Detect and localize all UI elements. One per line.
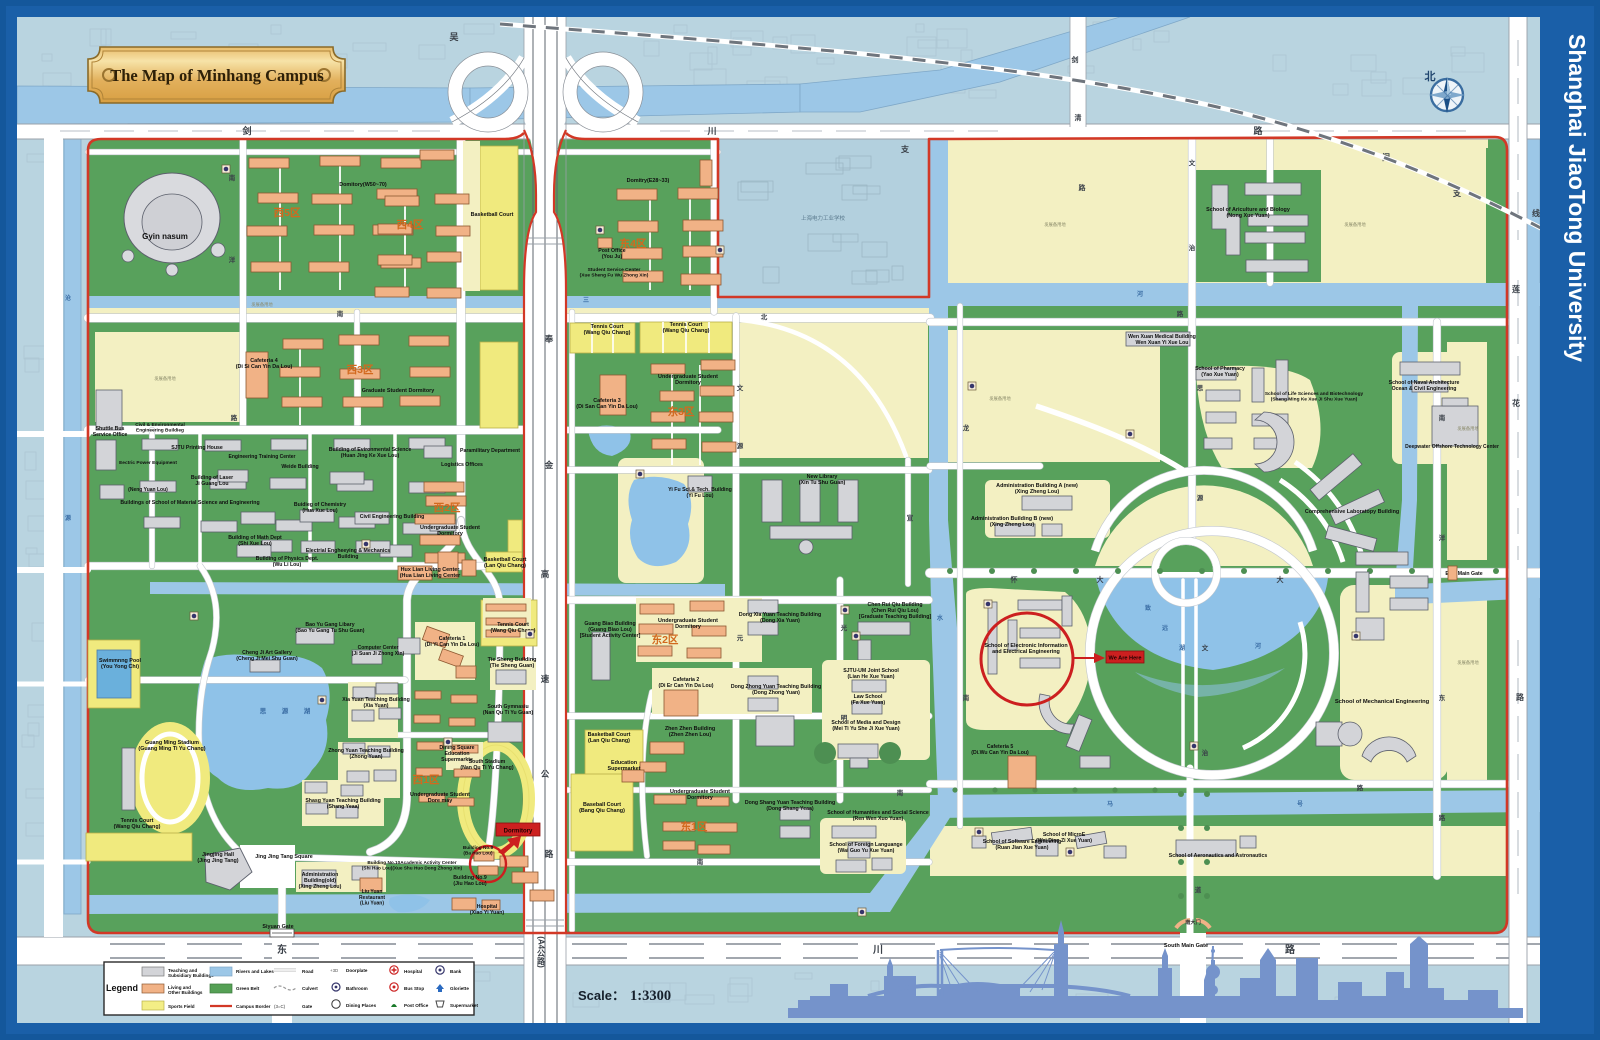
svg-text:路: 路 bbox=[1253, 125, 1263, 136]
svg-text:South Main Gate: South Main Gate bbox=[1164, 943, 1208, 949]
svg-text:Building No.9(Jiu Hao Lou): Building No.9(Jiu Hao Lou) bbox=[453, 875, 487, 887]
svg-text:公: 公 bbox=[541, 769, 550, 779]
svg-text:Guang Ming Stadium(Guang Ming: Guang Ming Stadium(Guang Ming Ti Yu Chan… bbox=[138, 740, 205, 752]
svg-text:吴: 吴 bbox=[449, 32, 459, 42]
svg-text:School of Naval ArchitectureOc: School of Naval ArchitectureOcean & Civi… bbox=[1389, 380, 1460, 392]
svg-text:西2区: 西2区 bbox=[434, 502, 461, 514]
svg-text:奉: 奉 bbox=[544, 334, 554, 344]
svg-text:Tie Sheng Building(Tie Sheng G: Tie Sheng Building(Tie Sheng Guan) bbox=[488, 657, 537, 669]
svg-text:水: 水 bbox=[937, 614, 944, 622]
svg-text:大: 大 bbox=[1277, 575, 1284, 584]
svg-text:金: 金 bbox=[544, 460, 554, 470]
svg-text:Civil & EnvironmentalEngineeri: Civil & EnvironmentalEngineering Buildie… bbox=[135, 422, 185, 434]
svg-text:Deepwater Offshore Technology: Deepwater Offshore Technology Center bbox=[1405, 444, 1499, 450]
svg-text:文: 文 bbox=[736, 383, 744, 392]
svg-text:Paramilitary Department: Paramilitary Department bbox=[460, 448, 520, 454]
svg-text:源: 源 bbox=[65, 514, 71, 522]
svg-text:Rivers and Lakes: Rivers and Lakes bbox=[236, 969, 274, 974]
svg-text:Baseball Court(Bang Qiu Chang): Baseball Court(Bang Qiu Chang) bbox=[579, 802, 625, 814]
svg-text:治: 治 bbox=[1202, 748, 1209, 757]
svg-text:Dining Places: Dining Places bbox=[346, 1003, 377, 1008]
svg-text:Zhen Zhen Building(Zhen Zhen L: Zhen Zhen Building(Zhen Zhen Lou) bbox=[665, 726, 715, 738]
svg-text:治: 治 bbox=[1189, 243, 1196, 252]
svg-text:Domitory(W50~70): Domitory(W50~70) bbox=[339, 182, 387, 188]
svg-text:School of Electronic Informati: School of Electronic Informationand Elec… bbox=[984, 643, 1067, 655]
svg-text:Bathroom: Bathroom bbox=[346, 986, 368, 991]
svg-text:Basketball Court(Lan Qiu Chang: Basketball Court(Lan Qiu Chang) bbox=[484, 557, 527, 569]
svg-text:Engineering Training Center: Engineering Training Center bbox=[229, 454, 296, 460]
svg-text:源: 源 bbox=[282, 706, 289, 715]
svg-text:河: 河 bbox=[1137, 290, 1143, 298]
svg-text:南: 南 bbox=[897, 788, 904, 797]
svg-text:洋: 洋 bbox=[229, 255, 236, 264]
svg-text:号: 号 bbox=[1297, 800, 1303, 808]
svg-text:剑: 剑 bbox=[241, 125, 251, 136]
svg-text:Buildings of School of Materia: Buildings of School of Material Science … bbox=[120, 500, 259, 506]
svg-text:Post Office(You Ju): Post Office(You Ju) bbox=[598, 248, 625, 260]
svg-text:Legend: Legend bbox=[106, 983, 138, 993]
svg-text:发展备用地: 发展备用地 bbox=[251, 301, 273, 308]
svg-text:SJTU-UM Joint School(Lian He X: SJTU-UM Joint School(Lian He Xue Yuan) bbox=[843, 668, 899, 680]
svg-text:Gloriette: Gloriette bbox=[450, 986, 469, 991]
svg-text:发展备用地: 发展备用地 bbox=[1457, 425, 1479, 432]
svg-text:思: 思 bbox=[1197, 383, 1204, 392]
svg-text:三: 三 bbox=[583, 297, 589, 304]
svg-text:(3=C): (3=C) bbox=[274, 1004, 286, 1009]
svg-text:Building of LaserJi Guang Lou: Building of LaserJi Guang Lou bbox=[191, 475, 233, 487]
svg-text:洋: 洋 bbox=[1439, 533, 1446, 542]
svg-text:南: 南 bbox=[697, 857, 704, 866]
svg-text:西4区: 西4区 bbox=[397, 219, 424, 231]
svg-text:Green Belt: Green Belt bbox=[236, 986, 260, 991]
svg-text:元: 元 bbox=[737, 634, 744, 642]
svg-text:东2区: 东2区 bbox=[652, 633, 679, 646]
svg-text:宣: 宣 bbox=[907, 513, 914, 522]
svg-text:南大门: 南大门 bbox=[1185, 918, 1201, 926]
svg-text:1:3300: 1:3300 bbox=[630, 988, 671, 1004]
svg-text:发展备用地: 发展备用地 bbox=[154, 375, 176, 382]
svg-text:South Gymnasiu(Nan Qu Ti Yu Gu: South Gymnasiu(Nan Qu Ti Yu Guan) bbox=[483, 704, 534, 716]
svg-text:We Are Here: We Are Here bbox=[1109, 656, 1142, 662]
svg-text:(Neng Yuan Lou): (Neng Yuan Lou) bbox=[128, 487, 168, 493]
svg-text:莲: 莲 bbox=[1512, 284, 1520, 294]
svg-text:Post Office: Post Office bbox=[404, 1003, 429, 1008]
svg-text:Shanghai JiaoTong University: Shanghai JiaoTong University bbox=[1564, 34, 1590, 362]
svg-text:湖: 湖 bbox=[1179, 644, 1185, 652]
svg-text:Hospital: Hospital bbox=[404, 969, 422, 974]
svg-text:沧: 沧 bbox=[65, 294, 71, 302]
svg-text:Campus Border: Campus Border bbox=[236, 1004, 271, 1009]
svg-text:南: 南 bbox=[1439, 413, 1446, 422]
svg-text:The Map of Minhang Campus: The Map of Minhang Campus bbox=[110, 66, 324, 85]
svg-text:Sports Field: Sports Field bbox=[168, 1004, 195, 1009]
svg-text:Cheng Ji Art Gallery(Cheng Ji: Cheng Ji Art Gallery(Cheng Ji Mei Shu Gu… bbox=[236, 650, 298, 662]
svg-text:Doorplate: Doorplate bbox=[346, 968, 368, 973]
svg-text:Road: Road bbox=[302, 969, 314, 974]
svg-text:Building of Evironmental Scien: Building of Evironmental Science(Huan Ji… bbox=[329, 447, 412, 459]
svg-text:路: 路 bbox=[1079, 183, 1087, 192]
svg-text:路: 路 bbox=[1357, 783, 1364, 792]
svg-text:Swimmnng Pool(You Yong Chi): Swimmnng Pool(You Yong Chi) bbox=[99, 658, 141, 670]
svg-text:花: 花 bbox=[1512, 398, 1520, 408]
svg-text:高: 高 bbox=[541, 569, 550, 579]
svg-text:Bank: Bank bbox=[450, 969, 462, 974]
svg-text:School of MicroE(Wei Dian Zi X: School of MicroE(Wei Dian Zi Xue Yuan) bbox=[1036, 832, 1092, 844]
svg-text:Weide Building: Weide Building bbox=[281, 464, 318, 470]
svg-text:Gate: Gate bbox=[302, 1004, 313, 1009]
svg-text:Supermarket: Supermarket bbox=[450, 1003, 479, 1008]
svg-text:Student Service Center(Xue She: Student Service Center(Xue Sheng Fu Wu Z… bbox=[580, 267, 649, 279]
svg-text:南: 南 bbox=[229, 173, 236, 182]
svg-text:Graduate Student Dormitory: Graduate Student Dormitory bbox=[362, 388, 434, 394]
svg-text:AdministrationBuilding(old)(Xi: AdministrationBuilding(old)(Xing Zheng L… bbox=[299, 872, 342, 890]
svg-text:文: 文 bbox=[1201, 643, 1209, 652]
svg-text:Civil Engineering Building: Civil Engineering Building bbox=[360, 514, 425, 520]
svg-text:大: 大 bbox=[1097, 575, 1104, 584]
svg-text:川: 川 bbox=[706, 126, 716, 136]
svg-text:Building No.10Academic Activit: Building No.10Academic Activity Center(S… bbox=[362, 860, 463, 871]
svg-text:Bao Yu Gang Libary(Bao Yu Gang: Bao Yu Gang Libary(Bao Yu Gang Tu Shu Gu… bbox=[296, 622, 365, 634]
svg-text:Jingjing Hall(Jing Jing Tang): Jingjing Hall(Jing Jing Tang) bbox=[197, 852, 238, 864]
svg-text:明: 明 bbox=[841, 713, 848, 722]
svg-text:线: 线 bbox=[1532, 208, 1540, 218]
svg-text:南: 南 bbox=[337, 309, 344, 318]
svg-text:发展备用地: 发展备用地 bbox=[1044, 221, 1066, 228]
svg-text:支: 支 bbox=[900, 144, 910, 154]
svg-text:路: 路 bbox=[1285, 943, 1296, 956]
svg-text:+3D: +3D bbox=[330, 968, 338, 973]
svg-text:Guang Biao Building(Guang Biao: Guang Biao Building(Guang Biao Lou)[Stud… bbox=[580, 621, 641, 639]
svg-text:路: 路 bbox=[231, 413, 238, 422]
svg-text:清: 清 bbox=[1075, 113, 1082, 122]
svg-text:Computer Center(Ji Suan Ji Zho: Computer Center(Ji Suan Ji Zhong Xin) bbox=[352, 645, 405, 657]
svg-text:Jing Jing Tang Square: Jing Jing Tang Square bbox=[255, 854, 312, 860]
svg-text:School of Foreign Languange(Wa: School of Foreign Languange(Wai Guo Yu X… bbox=[829, 842, 902, 854]
svg-text:光: 光 bbox=[840, 623, 848, 632]
svg-text:发展备用地: 发展备用地 bbox=[989, 395, 1011, 402]
svg-text:Law School(Fa Xue Yuan): Law School(Fa Xue Yuan) bbox=[851, 694, 885, 706]
svg-text:西1区: 西1区 bbox=[413, 774, 440, 786]
svg-text:School of Mechanical Engineeri: School of Mechanical Engineering bbox=[1335, 699, 1430, 705]
svg-text:SJTU Printing House: SJTU Printing House bbox=[171, 445, 223, 451]
svg-text:Comprehensive Laboratopy Build: Comprehensive Laboratopy Building bbox=[1305, 509, 1399, 515]
svg-text:北: 北 bbox=[761, 312, 768, 321]
svg-text:Basketball Court: Basketball Court bbox=[471, 212, 514, 218]
svg-text:发展备用地: 发展备用地 bbox=[1457, 659, 1479, 666]
svg-text:致: 致 bbox=[1145, 604, 1152, 612]
svg-text:路: 路 bbox=[545, 849, 554, 859]
svg-text:源: 源 bbox=[1197, 493, 1204, 502]
svg-text:School of Life Sciences and Bi: School of Life Sciences and Biotechnolog… bbox=[1265, 391, 1364, 403]
svg-text:Logistics Offices: Logistics Offices bbox=[441, 462, 483, 468]
svg-text:School of Pharmacy(Yao Xue Yua: School of Pharmacy(Yao Xue Yuan) bbox=[1195, 366, 1245, 378]
svg-text:南: 南 bbox=[963, 693, 970, 702]
svg-text:川: 川 bbox=[872, 944, 883, 956]
svg-text:Wen Xuan Medical BuildingWen X: Wen Xuan Medical BuildingWen Xuan Yi Xue… bbox=[1128, 334, 1196, 346]
svg-text:西3区: 西3区 bbox=[347, 364, 374, 376]
svg-text:Culvert: Culvert bbox=[302, 986, 318, 991]
svg-text:东3区: 东3区 bbox=[668, 405, 695, 418]
svg-text:马: 马 bbox=[1107, 800, 1113, 808]
svg-text:Domitry(E28~33): Domitry(E28~33) bbox=[627, 178, 670, 184]
svg-text:Basketball Court(Lan Qiu Chang: Basketball Court(Lan Qiu Chang) bbox=[588, 732, 631, 744]
svg-text:School of Aeronautics and Astr: School of Aeronautics and Astronautics bbox=[1169, 853, 1268, 859]
svg-text:湖: 湖 bbox=[304, 706, 311, 715]
svg-text:(A4公路): (A4公路) bbox=[536, 936, 546, 968]
svg-text:Eectric Power Equipment: Eectric Power Equipment bbox=[119, 460, 177, 466]
svg-text:Shuttle BusService Office: Shuttle BusService Office bbox=[93, 426, 128, 438]
svg-text:Liu YuanRestaurant(Liu Yuan): Liu YuanRestaurant(Liu Yuan) bbox=[359, 889, 385, 907]
svg-text:速: 速 bbox=[541, 674, 550, 684]
svg-text:剑: 剑 bbox=[1071, 55, 1079, 64]
svg-text:东: 东 bbox=[1439, 693, 1446, 702]
svg-text:EducationSupermarket: EducationSupermarket bbox=[608, 760, 641, 772]
svg-text:源: 源 bbox=[737, 441, 744, 450]
svg-text:龙: 龙 bbox=[962, 423, 970, 432]
svg-text:上海电力工业学校: 上海电力工业学校 bbox=[801, 214, 846, 222]
svg-text:文: 文 bbox=[1188, 158, 1196, 167]
svg-text:远: 远 bbox=[1162, 624, 1168, 632]
svg-text:路: 路 bbox=[1516, 692, 1525, 702]
svg-text:西5区: 西5区 bbox=[274, 207, 301, 219]
svg-text:河: 河 bbox=[1255, 642, 1261, 650]
svg-text:东1区: 东1区 bbox=[681, 820, 708, 833]
svg-text:思: 思 bbox=[260, 706, 267, 715]
svg-text:东: 东 bbox=[277, 943, 287, 956]
svg-text:路: 路 bbox=[1177, 309, 1184, 318]
svg-text:北: 北 bbox=[1425, 69, 1436, 83]
svg-text:Scale：: Scale： bbox=[578, 988, 625, 1003]
svg-text:发展备用地: 发展备用地 bbox=[1344, 221, 1366, 228]
svg-text:路: 路 bbox=[1439, 813, 1446, 822]
svg-text:Building No.8(Ba Hao Lou): Building No.8(Ba Hao Lou) bbox=[463, 845, 494, 856]
svg-text:Gyin nasum: Gyin nasum bbox=[142, 232, 188, 241]
svg-text:道: 道 bbox=[1195, 885, 1202, 894]
svg-text:Hux Lian Living Center(Hua Lia: Hux Lian Living Center(Hua Lian Living C… bbox=[400, 567, 461, 579]
svg-text:Bus Stop: Bus Stop bbox=[404, 986, 424, 991]
svg-text:Dormitory: Dormitory bbox=[504, 829, 533, 835]
svg-text:怀: 怀 bbox=[1010, 575, 1018, 584]
